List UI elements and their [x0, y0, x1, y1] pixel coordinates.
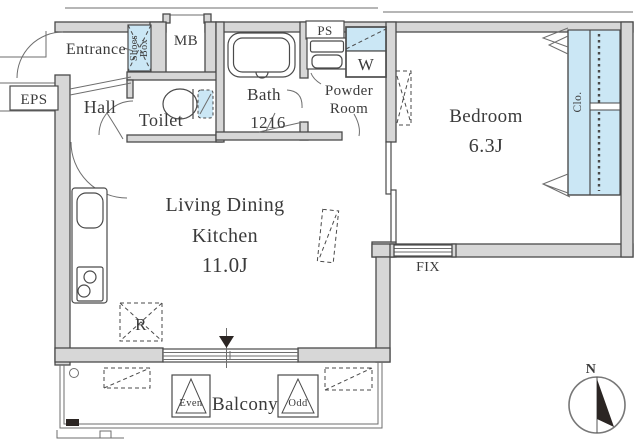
balcony-dashed-box-right	[325, 368, 372, 390]
balcony-sliding-window	[163, 349, 298, 362]
balcony-dashed-box-left	[104, 368, 150, 388]
evacuation-hatch-even	[172, 375, 210, 417]
bedroom-size-label: 6.3J	[469, 135, 503, 157]
closet-folding-door-symbols	[543, 28, 570, 197]
wall-toilet-top	[127, 72, 222, 80]
hatch-even-label: Even	[179, 398, 203, 409]
ldk-label-1: Living Dining	[165, 194, 284, 216]
kitchen-counter	[72, 188, 107, 303]
washer-label: W	[358, 55, 375, 74]
entrance-label: Entrance	[66, 41, 126, 58]
wall-bath-left	[216, 22, 224, 142]
shoes-box-label-2: Box	[139, 39, 150, 57]
ldk-size-label: 11.0J	[202, 253, 248, 277]
north-label: N	[586, 362, 597, 377]
bedroom-sliding-door	[386, 142, 396, 242]
wall-powder-bottom	[216, 132, 342, 140]
wall-toilet-bottom	[127, 135, 222, 142]
ac-unit-marker-ldk	[317, 209, 338, 262]
hall-label: Hall	[84, 97, 117, 117]
ldk-label-2: Kitchen	[192, 225, 258, 247]
entrance-step-lines	[70, 77, 131, 95]
floor-plan-page: Entrance Shoes Box MB EPS Hall Toilet Ba…	[0, 0, 640, 442]
wall-powder-bedroom	[386, 22, 396, 142]
wall-ldk-bottom-left	[55, 348, 163, 362]
hatch-odd-label: Odd	[288, 398, 308, 409]
balcony-drain	[70, 369, 79, 378]
kitchen-sink-icon	[77, 193, 103, 228]
wall-ldk-right-lower	[376, 257, 390, 362]
floor-plan-svg: Entrance Shoes Box MB EPS Hall Toilet Ba…	[0, 0, 640, 442]
eps-label: EPS	[20, 92, 47, 108]
mb-label: MB	[174, 33, 198, 49]
refrigerator-label: R	[135, 315, 147, 334]
balcony-label: Balcony	[212, 394, 278, 415]
bath-label: Bath	[247, 85, 281, 104]
drain-pipe	[66, 419, 79, 426]
wall-left-outer	[55, 75, 70, 365]
ps-label: PS	[317, 23, 332, 38]
toilet-label: Toilet	[139, 110, 183, 130]
fix-window-label: FIX	[416, 260, 440, 275]
bathtub-icon	[228, 33, 295, 78]
wall-mb-right	[205, 22, 216, 78]
pipe-box	[100, 431, 111, 438]
bath-size-label: 1216	[250, 113, 286, 132]
closet-shelf-gap	[590, 103, 620, 110]
powder-room-label-2: Room	[330, 101, 368, 117]
north-arrow-icon	[569, 377, 625, 433]
wall-ldk-bottom-right	[298, 348, 390, 362]
fix-window	[390, 244, 456, 257]
wall-shoesbox-mb	[150, 22, 166, 78]
wall-right-outer	[621, 22, 633, 257]
entrance-door-arc	[17, 32, 63, 78]
evacuation-hatch-odd	[278, 375, 318, 417]
bedroom-label: Bedroom	[449, 106, 523, 127]
ac-unit-marker-bedroom	[396, 71, 411, 125]
washbasin-icon	[307, 38, 347, 69]
closet-label: Clo.	[572, 91, 584, 112]
powder-room-label-1: Powder	[325, 83, 373, 99]
stove-icon	[77, 267, 103, 301]
